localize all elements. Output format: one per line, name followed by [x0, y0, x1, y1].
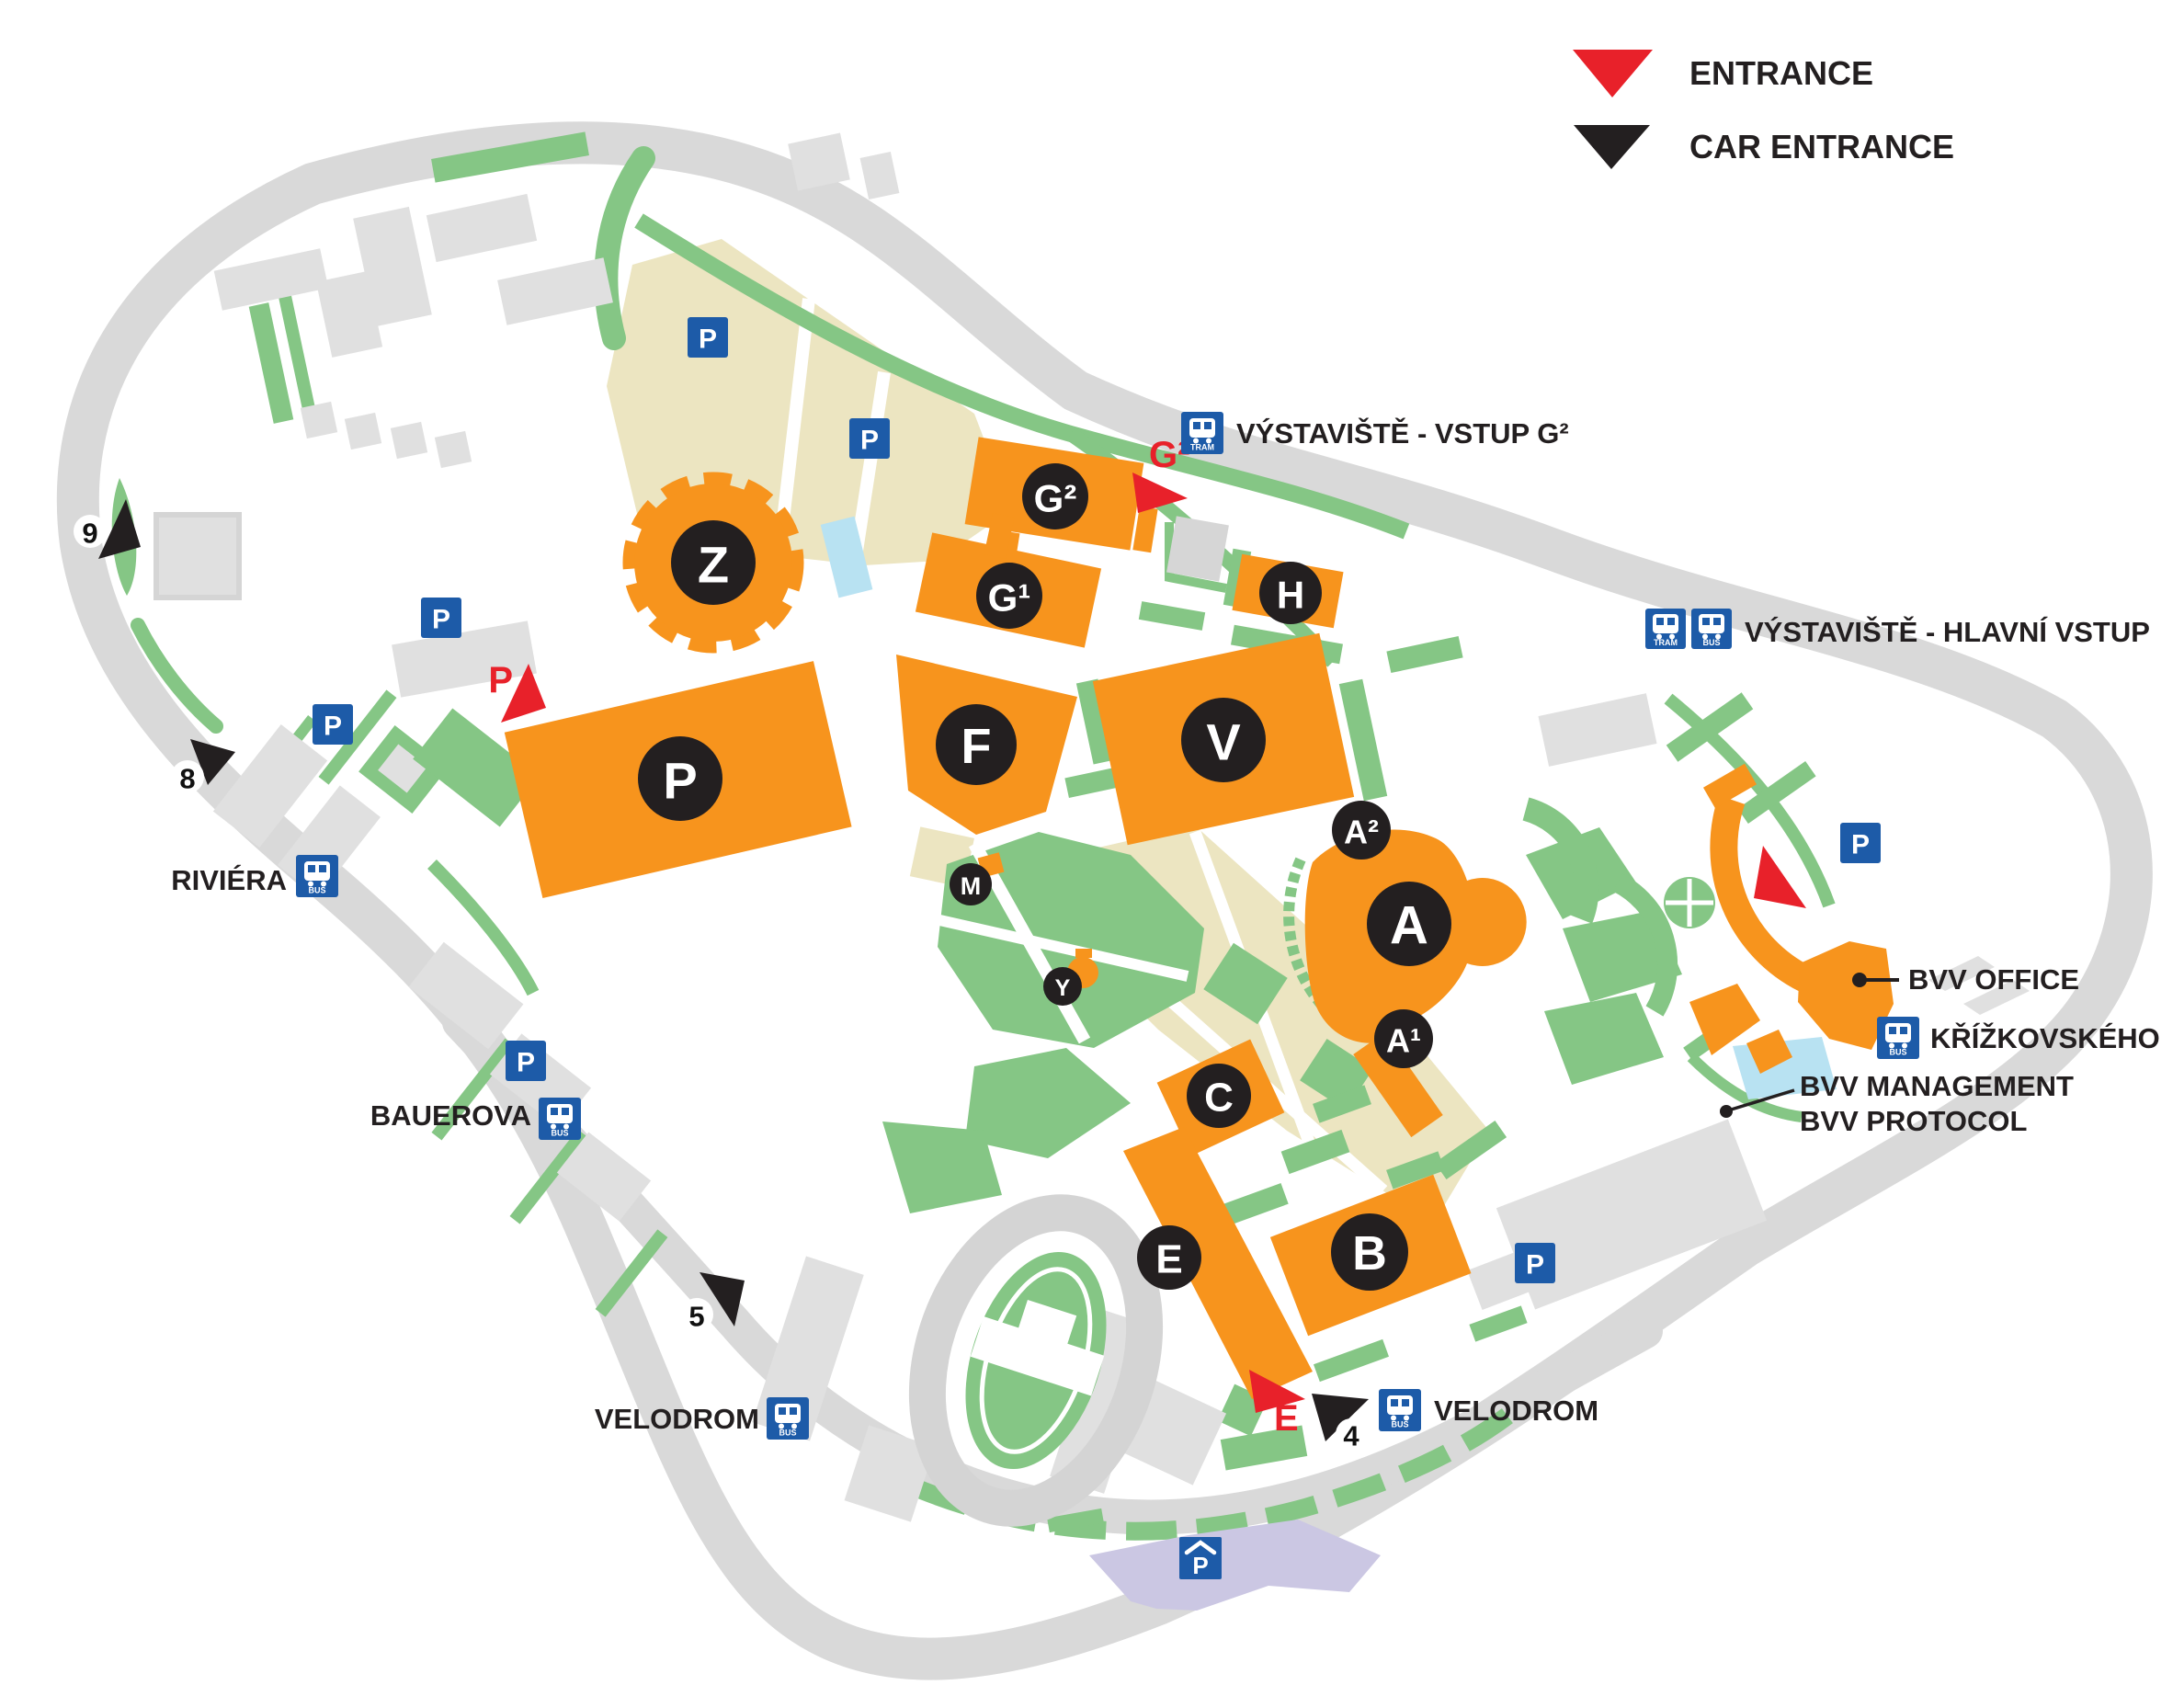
- svg-text:P: P: [1526, 1250, 1544, 1281]
- svg-text:9: 9: [82, 518, 97, 550]
- svg-text:G¹: G¹: [988, 576, 1031, 620]
- pavilion-label-b: B: [1331, 1213, 1408, 1291]
- legend-entrance-icon: [1573, 50, 1653, 97]
- stop-bauerova: BAUEROVA BUS: [370, 1098, 581, 1140]
- svg-text:BVV MANAGEMENT: BVV MANAGEMENT: [1800, 1070, 2074, 1102]
- svg-text:P: P: [324, 712, 342, 742]
- svg-text:C: C: [1204, 1076, 1234, 1121]
- svg-text:BUS: BUS: [779, 1429, 796, 1438]
- parking-icon: P: [849, 418, 890, 459]
- svg-text:BUS: BUS: [1391, 1420, 1408, 1429]
- svg-text:BUS: BUS: [308, 886, 325, 895]
- svg-text:ENTRANCE: ENTRANCE: [1689, 54, 1873, 92]
- svg-text:5: 5: [688, 1301, 704, 1333]
- svg-text:Y: Y: [1055, 975, 1071, 1001]
- stop-velodrom-west: VELODROM BUS: [595, 1397, 809, 1440]
- stop-riviera: RIVIÉRA BUS: [171, 855, 338, 897]
- svg-text:V: V: [1206, 713, 1240, 771]
- svg-text:Z: Z: [698, 536, 729, 594]
- parking-icon: P: [688, 317, 728, 358]
- tram-icon: TRAM: [1181, 412, 1223, 454]
- svg-text:BVV OFFICE: BVV OFFICE: [1908, 963, 2079, 996]
- stop-vystaviste-hlavni-vstup: TRAM BUS VÝSTAVIŠTĚ - HLAVNÍ VSTUP: [1645, 609, 2150, 649]
- pavilion-label-g2: G²: [1022, 463, 1088, 529]
- velodrome: [891, 1184, 1180, 1536]
- svg-text:A¹: A¹: [1386, 1022, 1421, 1060]
- svg-text:4: 4: [1343, 1420, 1359, 1452]
- svg-text:P: P: [1851, 830, 1870, 860]
- svg-text:E: E: [1274, 1398, 1299, 1439]
- parking-icon: P: [1840, 823, 1881, 863]
- svg-text:8: 8: [179, 763, 195, 795]
- pavilion-label-y: Y: [1043, 967, 1082, 1006]
- svg-text:CAR ENTRANCE: CAR ENTRANCE: [1689, 128, 1954, 165]
- svg-text:BVV PROTOCOL: BVV PROTOCOL: [1800, 1105, 2027, 1137]
- fairground-map: Z P F V G² G¹ H A A² A¹ C B E M Y G² P E: [0, 0, 2184, 1685]
- svg-text:VÝSTAVIŠTĚ - HLAVNÍ VSTUP: VÝSTAVIŠTĚ - HLAVNÍ VSTUP: [1745, 615, 2150, 648]
- pavilion-label-z: Z: [671, 520, 756, 605]
- pavilion-label-v: V: [1181, 698, 1266, 782]
- parking-icon: P: [313, 704, 353, 745]
- svg-text:BUS: BUS: [551, 1129, 568, 1138]
- bus-icon: BUS: [1379, 1389, 1421, 1431]
- svg-text:A: A: [1390, 896, 1428, 956]
- legend-car-entrance-icon: [1574, 125, 1650, 169]
- svg-text:BAUEROVA: BAUEROVA: [370, 1099, 531, 1132]
- svg-text:P: P: [860, 426, 879, 456]
- bus-icon: BUS: [1877, 1017, 1919, 1059]
- svg-text:P: P: [1192, 1552, 1208, 1579]
- pavilion-label-p: P: [638, 736, 722, 821]
- pavilion-label-h: H: [1259, 562, 1322, 624]
- bus-icon: BUS: [1691, 609, 1732, 649]
- svg-text:A²: A²: [1344, 814, 1379, 851]
- svg-text:BUS: BUS: [1889, 1048, 1906, 1057]
- svg-text:H: H: [1277, 574, 1304, 617]
- svg-text:F: F: [961, 719, 992, 774]
- entrance-icon-bvv-office: [1754, 846, 1806, 908]
- pavilion-label-a1: A¹: [1374, 1009, 1433, 1068]
- pavilion-label-f: F: [936, 704, 1017, 785]
- bvv-office-building: [1689, 764, 1894, 1074]
- parking-icon: P: [421, 598, 461, 638]
- svg-text:P: P: [663, 752, 697, 810]
- parking-icon: P: [506, 1041, 546, 1081]
- pavilion-label-e: E: [1137, 1225, 1201, 1290]
- svg-text:TRAM: TRAM: [1654, 638, 1678, 647]
- pavilion-label-m: M: [950, 863, 992, 905]
- stop-krizkovskeho: BUS KŘÍŽKOVSKÉHO: [1877, 1017, 2160, 1059]
- svg-text:VELODROM: VELODROM: [595, 1403, 759, 1435]
- stop-vystaviste-vstup-g2: TRAM VÝSTAVIŠTĚ - VSTUP G²: [1181, 412, 1569, 454]
- parking-garage-icon: P: [1179, 1537, 1222, 1579]
- legend: ENTRANCE CAR ENTRANCE: [1573, 50, 1954, 169]
- bus-icon: BUS: [296, 855, 338, 897]
- svg-text:P: P: [699, 324, 717, 355]
- pavilion-label-c: C: [1187, 1064, 1251, 1128]
- svg-text:TRAM: TRAM: [1190, 443, 1214, 452]
- car-entrance-4: 4: [1312, 1394, 1369, 1452]
- parking-icon: P: [1515, 1243, 1555, 1283]
- svg-text:P: P: [488, 660, 513, 700]
- svg-text:M: M: [961, 872, 982, 900]
- svg-text:P: P: [432, 605, 450, 635]
- svg-text:P: P: [517, 1048, 535, 1078]
- bus-icon: BUS: [539, 1098, 581, 1140]
- pavilion-label-a: A: [1367, 882, 1451, 966]
- svg-text:VELODROM: VELODROM: [1434, 1395, 1598, 1427]
- svg-text:BUS: BUS: [1702, 638, 1720, 647]
- stop-velodrom-east: BUS VELODROM: [1379, 1389, 1598, 1431]
- svg-text:RIVIÉRA: RIVIÉRA: [171, 864, 287, 896]
- svg-text:KŘÍŽKOVSKÉHO: KŘÍŽKOVSKÉHO: [1930, 1021, 2160, 1054]
- svg-text:VÝSTAVIŠTĚ - VSTUP G²: VÝSTAVIŠTĚ - VSTUP G²: [1236, 416, 1569, 450]
- tram-icon: TRAM: [1645, 609, 1686, 649]
- bus-icon: BUS: [767, 1397, 809, 1440]
- svg-text:E: E: [1155, 1237, 1182, 1282]
- pavilion-label-g1: G¹: [976, 563, 1042, 629]
- svg-text:B: B: [1352, 1227, 1387, 1281]
- pavilion-label-a2: A²: [1332, 801, 1391, 860]
- svg-text:G²: G²: [1034, 477, 1077, 520]
